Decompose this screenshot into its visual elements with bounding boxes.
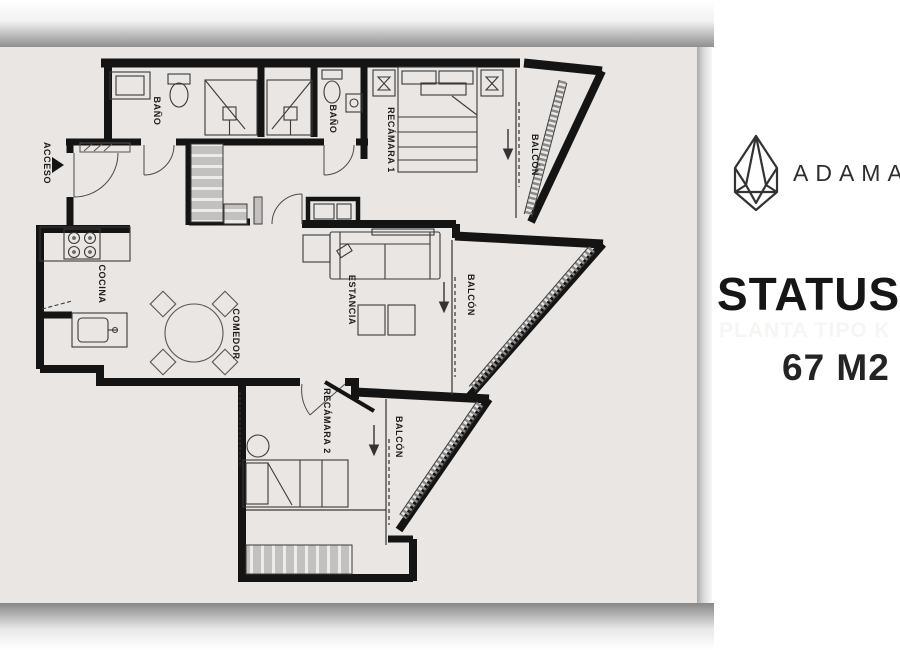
chair <box>150 349 175 374</box>
room-label-living: ESTANCIA <box>347 275 357 325</box>
plan-subtitle: PLANTA TIPO K <box>719 319 891 343</box>
chair <box>150 291 175 316</box>
room-label-balcony3: BALCÓN <box>394 416 405 458</box>
walls <box>36 59 603 581</box>
room-labels: BAÑO BAÑO RECÁMARA 1 BALCÓN ESTANCIA BAL… <box>42 97 541 459</box>
side-table <box>303 235 330 262</box>
floorplan-card: BAÑO BAÑO RECÁMARA 1 BALCÓN ESTANCIA BAL… <box>0 47 697 603</box>
room-label-dining: COMEDOR <box>231 308 241 359</box>
coffee-table-2 <box>388 305 415 335</box>
bottom-shadow-gradient <box>0 603 714 650</box>
bathroom1-fixtures <box>110 72 190 107</box>
room-label-balcony2: BALCÓN <box>466 274 477 316</box>
bathroom2-fixtures <box>322 70 362 112</box>
room-label-balcony1: BALCÓN <box>530 134 541 176</box>
access-arrow-icon <box>52 157 64 173</box>
dining-furniture <box>150 291 237 374</box>
living-furniture <box>303 199 440 335</box>
info-panel: ADAMA STATUS PLANTA TIPO K 67 M2 <box>712 47 900 603</box>
plan-area: 67 M2 <box>782 347 890 389</box>
brand-name: ADAMA <box>793 160 900 187</box>
kitchen-fixtures <box>40 227 130 347</box>
toilet-bowl <box>170 83 188 107</box>
floorplan-drawing: BAÑO BAÑO RECÁMARA 1 BALCÓN ESTANCIA BAL… <box>0 47 697 603</box>
plan-title: STATUS <box>717 267 900 321</box>
bedroom2-wardrobe <box>246 545 352 574</box>
coffee-table-1 <box>358 305 385 335</box>
room-label-bath1: BAÑO <box>152 97 162 126</box>
corridor-closet <box>254 197 262 224</box>
hall-closet <box>191 144 223 222</box>
page: BAÑO BAÑO RECÁMARA 1 BALCÓN ESTANCIA BAL… <box>0 0 900 650</box>
bed-single <box>243 460 348 507</box>
room-label-bedroom1: RECÁMARA 1 <box>386 107 396 173</box>
top-shadow-gradient <box>0 0 714 47</box>
balcony-arrows <box>370 129 513 455</box>
room-label-bedroom2: RECÁMARA 2 <box>322 388 332 454</box>
stool <box>247 435 269 457</box>
room-label-access: ACCESO <box>42 142 52 184</box>
gem-logo-icon <box>726 133 786 213</box>
room-label-bath2: BAÑO <box>328 105 338 134</box>
room-label-kitchen: COCINA <box>97 264 107 303</box>
dining-table <box>165 304 223 362</box>
small-closet <box>224 204 247 224</box>
sink-basin <box>78 318 108 342</box>
